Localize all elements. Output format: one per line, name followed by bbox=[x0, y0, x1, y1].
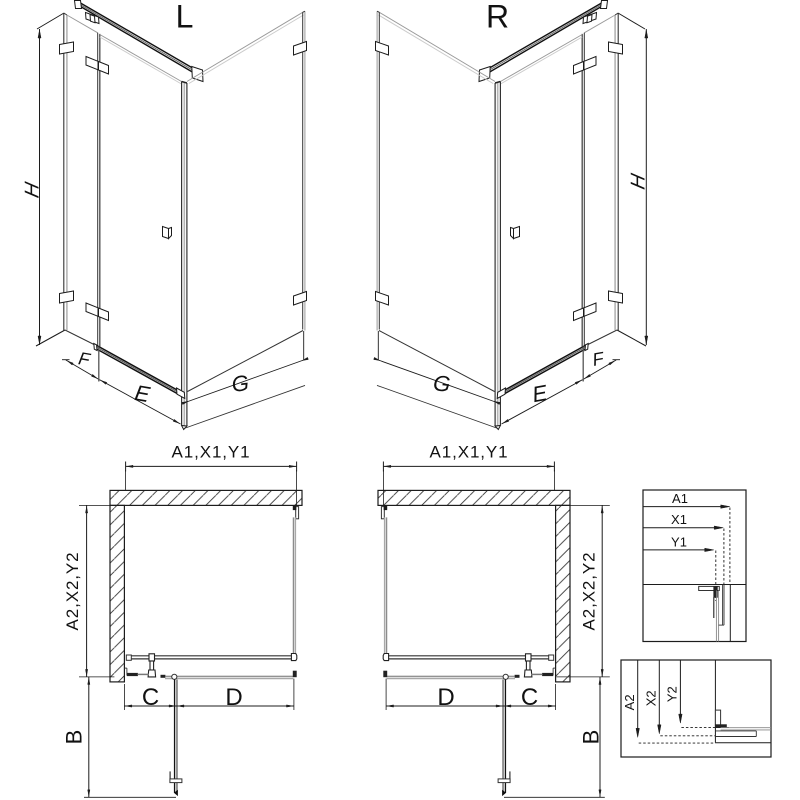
svg-text:X2: X2 bbox=[643, 690, 658, 706]
svg-text:X1: X1 bbox=[671, 512, 687, 527]
svg-text:A2,X2,Y2: A2,X2,Y2 bbox=[579, 551, 598, 630]
svg-text:G: G bbox=[432, 370, 452, 397]
svg-text:Y2: Y2 bbox=[665, 686, 680, 702]
svg-text:A2,X2,Y2: A2,X2,Y2 bbox=[63, 551, 82, 630]
svg-text:A1,X1,Y1: A1,X1,Y1 bbox=[429, 443, 508, 462]
svg-text:B: B bbox=[579, 730, 604, 745]
svg-text:C: C bbox=[142, 684, 159, 711]
svg-text:G: G bbox=[230, 370, 250, 397]
svg-text:A1: A1 bbox=[672, 491, 688, 506]
svg-text:B: B bbox=[62, 730, 87, 745]
svg-text:D: D bbox=[437, 684, 454, 711]
svg-text:C: C bbox=[521, 684, 538, 711]
svg-text:D: D bbox=[225, 684, 242, 711]
svg-text:A1,X1,Y1: A1,X1,Y1 bbox=[171, 443, 250, 462]
svg-text:Y1: Y1 bbox=[671, 535, 687, 550]
svg-text:A2: A2 bbox=[622, 694, 637, 710]
svg-text:L: L bbox=[176, 0, 194, 35]
svg-text:R: R bbox=[486, 0, 509, 35]
